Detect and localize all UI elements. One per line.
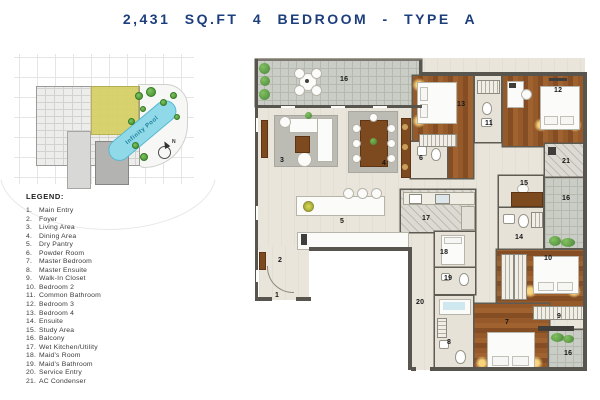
legend-item: 16.Balcony [26, 335, 186, 344]
room-number-16: 16 [564, 350, 572, 357]
room-number-4: 4 [382, 160, 386, 167]
legend: LEGEND: 1.Main Entry2.Foyer3.Living Area… [26, 192, 186, 386]
room-number-5: 5 [340, 218, 344, 225]
room-number-15: 15 [520, 180, 528, 187]
legend-item: 14.Ensuite [26, 318, 186, 327]
room-number-9: 9 [557, 313, 561, 320]
floor-plan: 1234567891011121314151616161718192021 [253, 56, 593, 390]
room-number-6: 6 [419, 155, 423, 162]
room-number-1: 1 [275, 292, 279, 299]
legend-item: 15.Study Area [26, 327, 186, 336]
tree-icon [174, 114, 180, 120]
room-number-14: 14 [515, 234, 523, 241]
room-number-20: 20 [416, 299, 424, 306]
room-number-21: 21 [562, 158, 570, 165]
room-number-13: 13 [457, 101, 465, 108]
room-number-17: 17 [422, 215, 430, 222]
legend-item: 21.AC Condenser [26, 378, 186, 387]
room-number-10: 10 [544, 255, 552, 262]
room-number-19: 19 [444, 275, 452, 282]
legend-item: 18.Maid's Room [26, 352, 186, 361]
legend-item: 13.Bedroom 4 [26, 310, 186, 319]
tree-icon [132, 142, 139, 149]
legend-item: 9.Walk-In Closet [26, 275, 186, 284]
plan-labels: 1234567891011121314151616161718192021 [253, 56, 593, 390]
legend-item: 5.Dry Pantry [26, 241, 186, 250]
room-number-8: 8 [447, 339, 451, 346]
legend-item: 11.Common Bathroom [26, 292, 186, 301]
tree-icon [140, 106, 146, 112]
legend-item: 20.Service Entry [26, 369, 186, 378]
legend-item: 4.Dining Area [26, 233, 186, 242]
room-number-3: 3 [280, 157, 284, 164]
legend-item: 3.Living Area [26, 224, 186, 233]
legend-list: 1.Main Entry2.Foyer3.Living Area4.Dining… [26, 207, 186, 386]
tree-icon [146, 87, 156, 97]
room-number-16: 16 [562, 195, 570, 202]
legend-item: 12.Bedroom 3 [26, 301, 186, 310]
tree-icon [128, 118, 135, 125]
room-number-12: 12 [554, 87, 562, 94]
room-number-7: 7 [505, 319, 509, 326]
room-number-2: 2 [278, 257, 282, 264]
legend-item: 7.Master Bedroom [26, 258, 186, 267]
legend-item: 10.Bedroom 2 [26, 284, 186, 293]
tree-icon [160, 99, 167, 106]
legend-item: 1.Main Entry [26, 207, 186, 216]
room-number-16: 16 [340, 76, 348, 83]
tree-icon [140, 153, 148, 161]
room-number-11: 11 [485, 120, 493, 127]
compass-north-label: N [172, 139, 176, 145]
key-plan: Infinity Pool N [14, 54, 194, 184]
legend-item: 17.Wet Kitchen/Utility [26, 344, 186, 353]
page-title: 2,431 SQ.FT 4 BEDROOM - TYPE A [0, 11, 600, 27]
legend-item: 6.Powder Room [26, 250, 186, 259]
tree-icon [170, 92, 177, 99]
room-number-18: 18 [440, 249, 448, 256]
legend-title: LEGEND: [26, 192, 186, 201]
floorplan-page: 2,431 SQ.FT 4 BEDROOM - TYPE A Infinity … [0, 0, 600, 400]
legend-item: 8.Master Ensuite [26, 267, 186, 276]
tree-icon [135, 92, 143, 100]
legend-item: 2.Foyer [26, 216, 186, 225]
compass-icon: N [158, 146, 171, 159]
keyplan-units [67, 131, 91, 189]
legend-item: 19.Maid's Bathroom [26, 361, 186, 370]
